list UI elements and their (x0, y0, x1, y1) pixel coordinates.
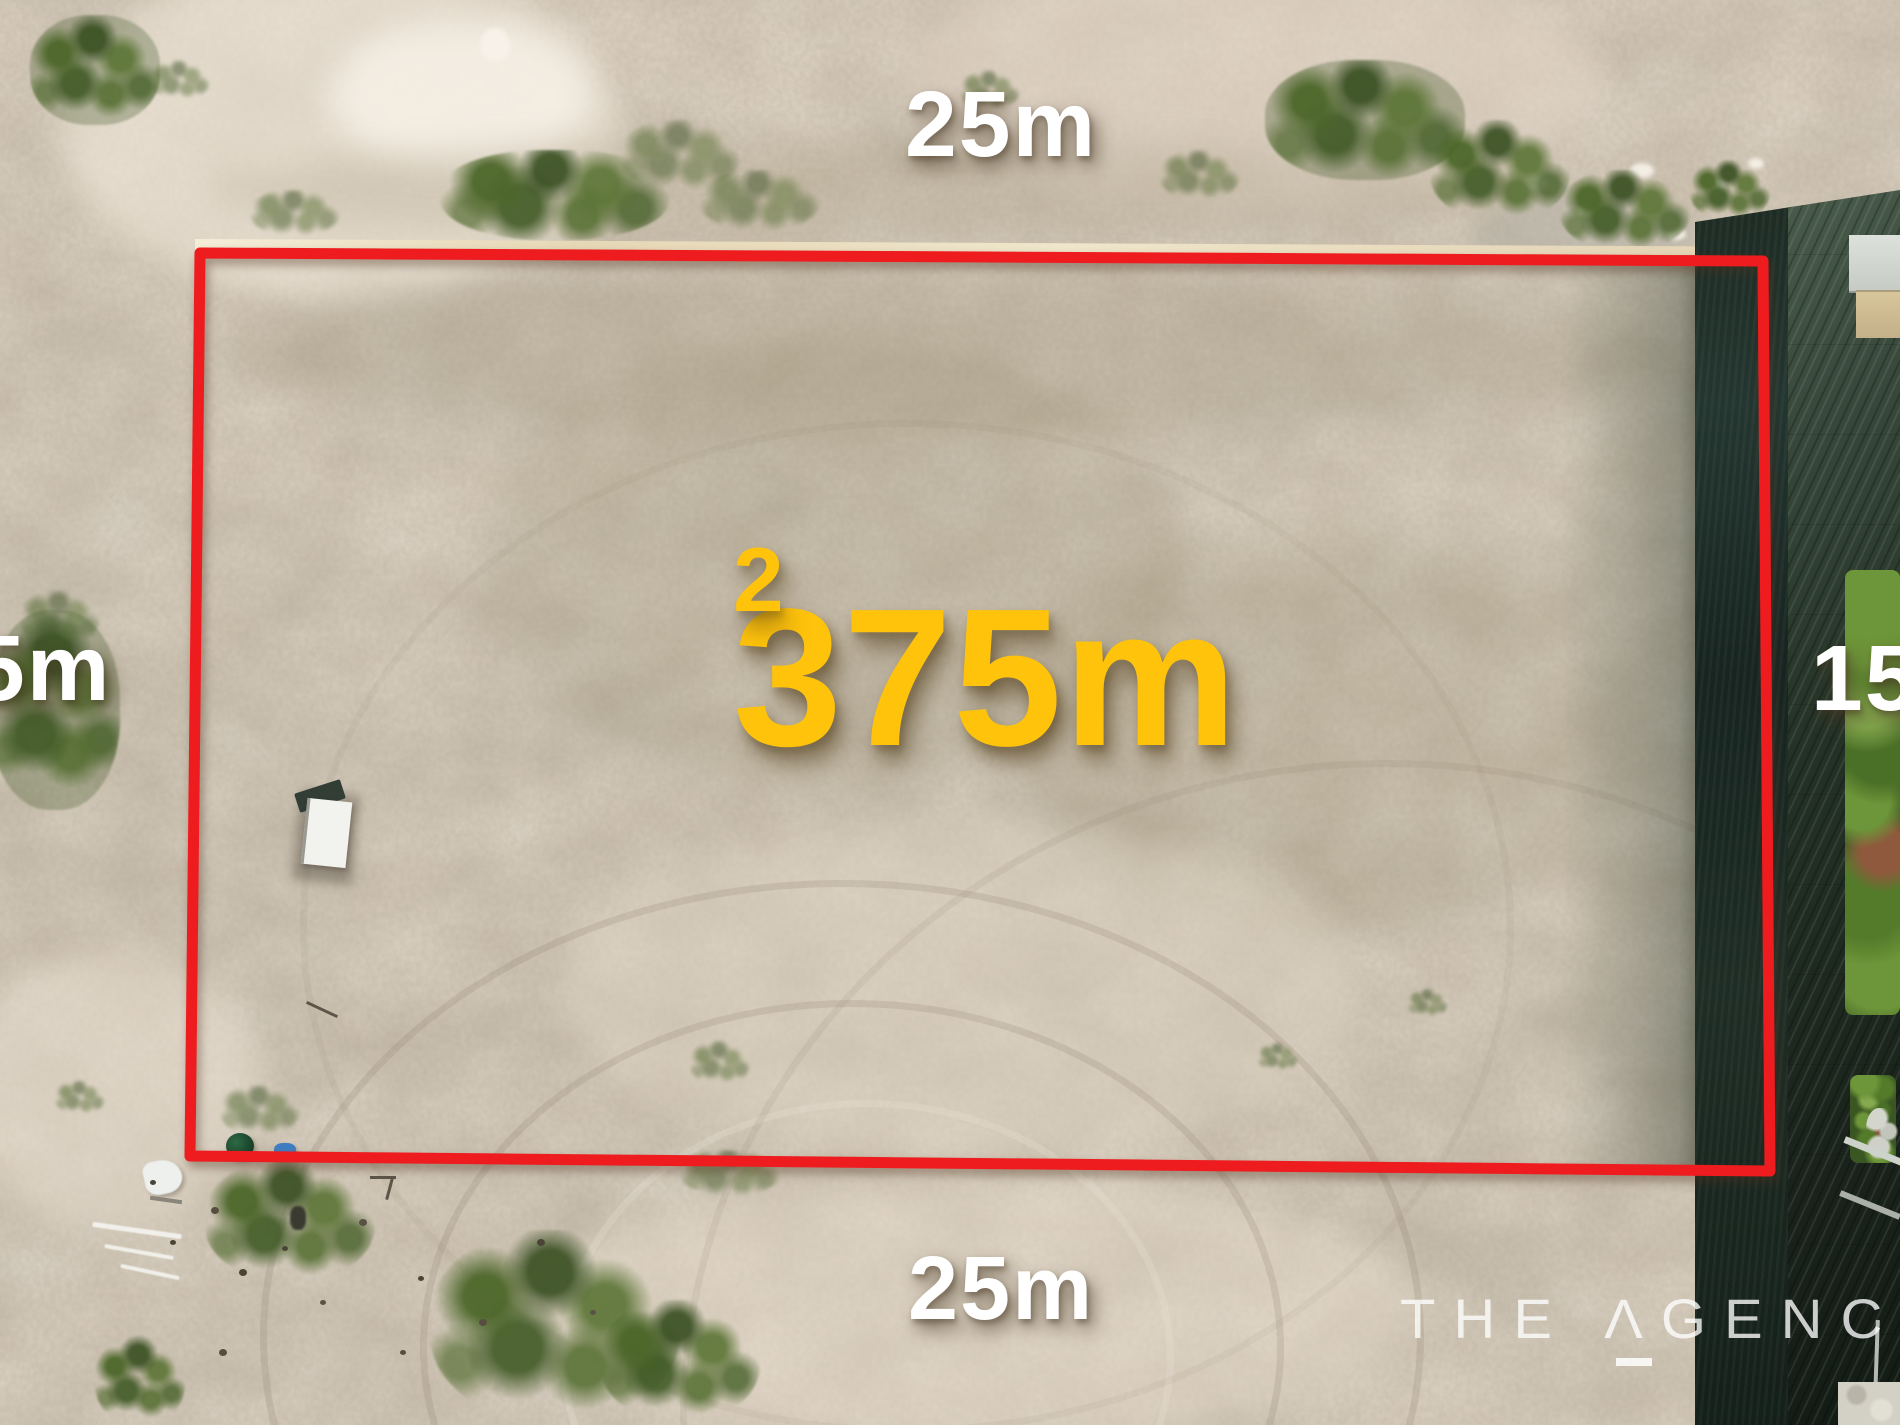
vegetation-patch (1258, 1042, 1298, 1072)
pebble-speckles (150, 1180, 156, 1185)
dimension-label-top: 25m (905, 78, 1097, 171)
dark-sand-patch (210, 265, 1660, 435)
vegetation-patch (700, 170, 820, 230)
fence-shadow (1560, 255, 1700, 1170)
green-bucket-debris (226, 1133, 254, 1159)
white-panel-debris (301, 798, 353, 868)
dimension-label-left: 5m (0, 622, 111, 715)
vegetation-patch (250, 190, 340, 235)
vegetation-patch (55, 1080, 105, 1115)
shade-cloth-fence (1695, 182, 1793, 1425)
dimension-label-right: 15 (1811, 632, 1900, 725)
watermark-underscore (1616, 1358, 1652, 1366)
vegetation-patch (150, 60, 210, 100)
vegetation-patch (680, 1150, 780, 1195)
vegetation-patch (1560, 170, 1690, 250)
white-rock (480, 28, 510, 62)
dimension-label-bottom: 25m (908, 1244, 1094, 1334)
aerial-lot-photo: 25m 25m 5m 15 375m2 THE ΛGENC (0, 0, 1900, 1425)
roof-light-panel (1849, 235, 1900, 293)
blue-debris (274, 1143, 296, 1159)
area-value: 375m (733, 580, 1238, 776)
vegetation-patch (1430, 120, 1570, 220)
vegetation-patch (1690, 160, 1770, 220)
vegetation-patch (1160, 150, 1240, 200)
vegetation-patch (95, 1335, 185, 1425)
vegetation-patch (220, 1085, 300, 1135)
dark-debris (290, 1206, 306, 1230)
paving-patch (1838, 1382, 1900, 1425)
roof-timber-bar (1856, 290, 1900, 338)
vegetation-patch (1408, 988, 1448, 1018)
agency-watermark: THE ΛGENC (1400, 1292, 1900, 1348)
vegetation-patch (30, 15, 160, 125)
vegetation-patch (690, 1040, 750, 1085)
vegetation-patch (600, 1300, 760, 1420)
